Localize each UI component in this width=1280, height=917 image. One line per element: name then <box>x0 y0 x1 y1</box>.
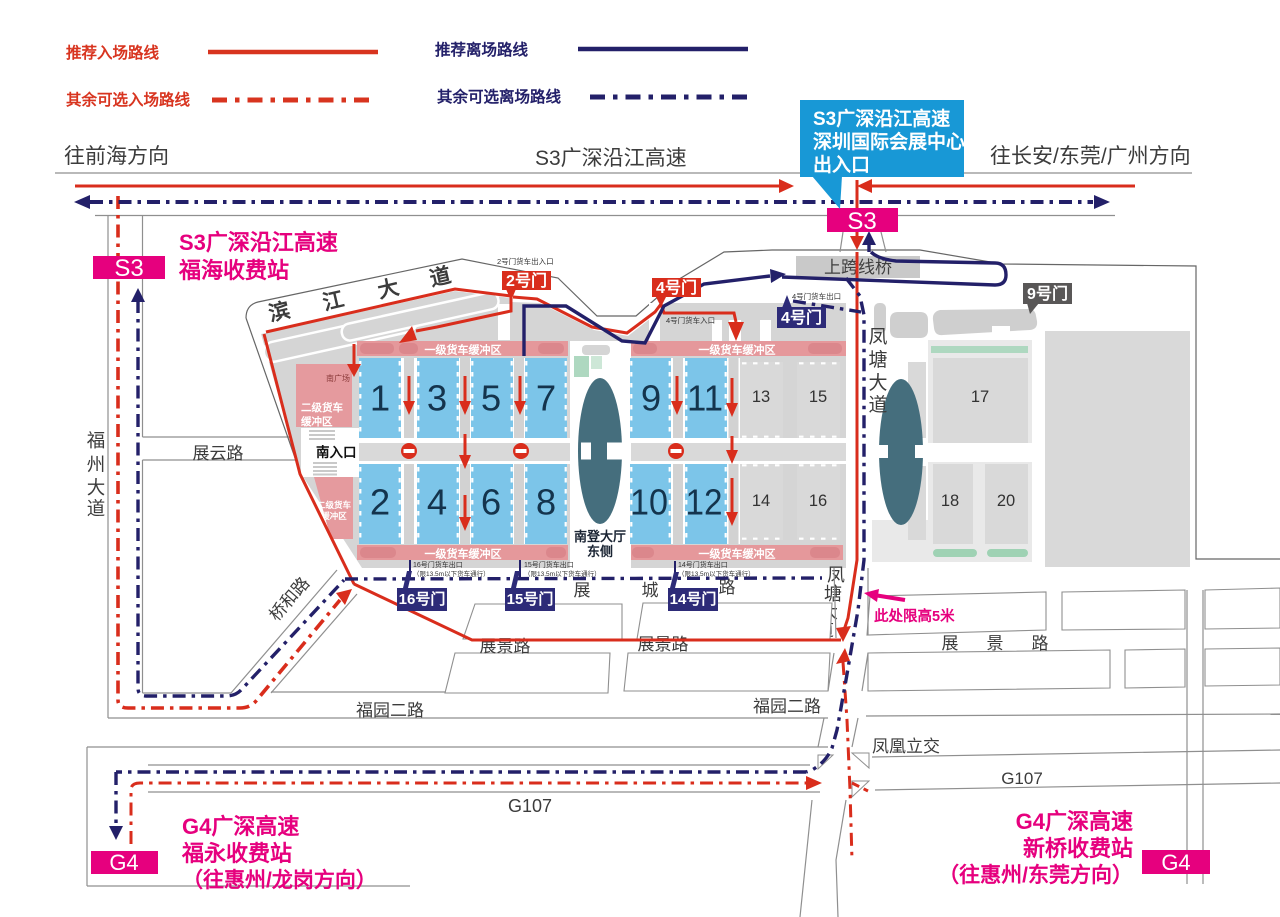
svg-text:缓冲区: 缓冲区 <box>300 415 333 428</box>
svg-text:凤: 凤 <box>868 327 887 348</box>
svg-text:14: 14 <box>752 492 770 510</box>
svg-text:二级货车: 二级货车 <box>317 500 352 510</box>
svg-text:南广场: 南广场 <box>326 373 350 383</box>
svg-text:10: 10 <box>630 482 668 523</box>
svg-text:塘: 塘 <box>824 584 842 604</box>
svg-text:路: 路 <box>1032 634 1049 653</box>
svg-text:4号门货车出口: 4号门货车出口 <box>792 291 841 301</box>
svg-text:道: 道 <box>868 394 887 416</box>
svg-text:展: 展 <box>942 634 959 653</box>
svg-text:深圳国际会展中心: 深圳国际会展中心 <box>813 130 965 153</box>
svg-text:18: 18 <box>941 492 959 510</box>
svg-text:4号门: 4号门 <box>781 308 822 327</box>
svg-text:一级货车缓冲区: 一级货车缓冲区 <box>699 547 776 561</box>
svg-text:福: 福 <box>87 430 106 451</box>
svg-text:城: 城 <box>642 581 659 600</box>
svg-text:G4: G4 <box>1161 850 1190 875</box>
svg-text:往长安/东莞/广州方向: 往长安/东莞/广州方向 <box>990 145 1191 168</box>
svg-text:往前海方向: 往前海方向 <box>64 145 169 168</box>
svg-text:新桥收费站: 新桥收费站 <box>1023 836 1133 861</box>
svg-text:G107: G107 <box>508 796 552 816</box>
svg-text:4: 4 <box>427 482 447 523</box>
svg-text:路: 路 <box>719 578 736 597</box>
svg-text:南登大厅: 南登大厅 <box>574 529 626 544</box>
svg-text:其余可选离场路线: 其余可选离场路线 <box>437 87 562 106</box>
svg-text:一级货车缓冲区: 一级货车缓冲区 <box>425 547 502 561</box>
svg-text:东侧: 东侧 <box>587 544 613 559</box>
svg-text:15: 15 <box>809 388 827 406</box>
svg-text:9号门: 9号门 <box>1027 284 1068 303</box>
svg-text:2: 2 <box>370 482 390 523</box>
svg-text:凤: 凤 <box>827 565 845 585</box>
svg-text:8: 8 <box>536 482 556 523</box>
svg-text:一级货车缓冲区: 一级货车缓冲区 <box>699 343 776 357</box>
svg-text:推荐入场路线: 推荐入场路线 <box>66 43 160 62</box>
svg-text:展云路: 展云路 <box>193 444 244 463</box>
svg-text:推荐离场路线: 推荐离场路线 <box>435 40 529 59</box>
svg-text:2号门: 2号门 <box>506 271 547 290</box>
svg-text:12: 12 <box>686 482 723 523</box>
svg-text:景: 景 <box>987 634 1004 653</box>
svg-text:此处限高5米: 此处限高5米 <box>874 607 955 625</box>
svg-text:15号门: 15号门 <box>507 590 554 608</box>
svg-text:（往惠州/东莞方向）: （往惠州/东莞方向） <box>938 863 1133 887</box>
svg-text:4号门: 4号门 <box>656 278 697 297</box>
svg-text:S3: S3 <box>114 255 143 282</box>
svg-text:S3: S3 <box>847 208 876 235</box>
svg-text:G4广深高速: G4广深高速 <box>1016 809 1133 834</box>
svg-text:福园二路: 福园二路 <box>753 697 821 716</box>
svg-text:（往惠州/龙岗方向）: （往惠州/龙岗方向） <box>182 868 377 892</box>
svg-text:州: 州 <box>87 454 106 475</box>
svg-text:15号门货车出口: 15号门货车出口 <box>524 560 574 569</box>
svg-text:塘: 塘 <box>868 349 887 371</box>
svg-text:福园二路: 福园二路 <box>356 701 424 720</box>
svg-text:凤凰立交: 凤凰立交 <box>872 737 940 756</box>
svg-text:南入口: 南入口 <box>316 444 357 460</box>
svg-text:17: 17 <box>971 388 989 406</box>
svg-text:14号门: 14号门 <box>670 590 717 608</box>
svg-text:2号门货车出入口: 2号门货车出入口 <box>497 256 554 266</box>
svg-text:6: 6 <box>481 482 501 523</box>
svg-text:G4广深高速: G4广深高速 <box>182 814 299 839</box>
svg-text:出入口: 出入口 <box>813 153 870 176</box>
svg-text:13: 13 <box>752 388 770 406</box>
svg-text:福海收费站: 福海收费站 <box>178 258 289 283</box>
svg-text:S3广深沿江高速: S3广深沿江高速 <box>813 107 950 130</box>
svg-text:S3广深沿江高速: S3广深沿江高速 <box>535 147 687 170</box>
svg-text:4号门货车入口: 4号门货车入口 <box>666 315 715 325</box>
svg-text:一级货车缓冲区: 一级货车缓冲区 <box>425 343 502 357</box>
svg-text:（限13.5m以下货车通行）: （限13.5m以下货车通行） <box>413 569 490 578</box>
svg-text:展: 展 <box>574 581 591 600</box>
svg-text:20: 20 <box>997 492 1015 510</box>
svg-text:大: 大 <box>87 477 106 498</box>
svg-text:5: 5 <box>481 378 501 419</box>
svg-text:缓冲区: 缓冲区 <box>321 511 347 521</box>
svg-text:11: 11 <box>687 378 723 419</box>
svg-text:G4: G4 <box>109 850 138 875</box>
svg-text:其余可选入场路线: 其余可选入场路线 <box>66 90 191 109</box>
svg-text:3: 3 <box>427 378 447 419</box>
svg-text:14号门货车出口: 14号门货车出口 <box>678 560 728 569</box>
svg-text:福永收费站: 福永收费站 <box>181 841 292 866</box>
svg-text:二级货车: 二级货车 <box>301 401 343 414</box>
svg-text:16号门货车出口: 16号门货车出口 <box>413 560 463 569</box>
svg-text:G107: G107 <box>1001 769 1043 788</box>
svg-text:（限13.5m以下货车通行）: （限13.5m以下货车通行） <box>524 569 601 578</box>
svg-text:（限13.5m以下货车通行）: （限13.5m以下货车通行） <box>678 569 755 578</box>
svg-text:1: 1 <box>370 378 390 419</box>
svg-text:展景路: 展景路 <box>638 635 689 654</box>
svg-text:S3广深沿江高速: S3广深沿江高速 <box>179 230 338 255</box>
svg-text:大: 大 <box>868 372 887 394</box>
svg-text:道: 道 <box>87 498 106 519</box>
svg-text:16: 16 <box>809 492 827 510</box>
svg-text:9: 9 <box>641 378 661 419</box>
svg-text:16号门: 16号门 <box>399 590 446 608</box>
svg-text:7: 7 <box>536 378 556 419</box>
